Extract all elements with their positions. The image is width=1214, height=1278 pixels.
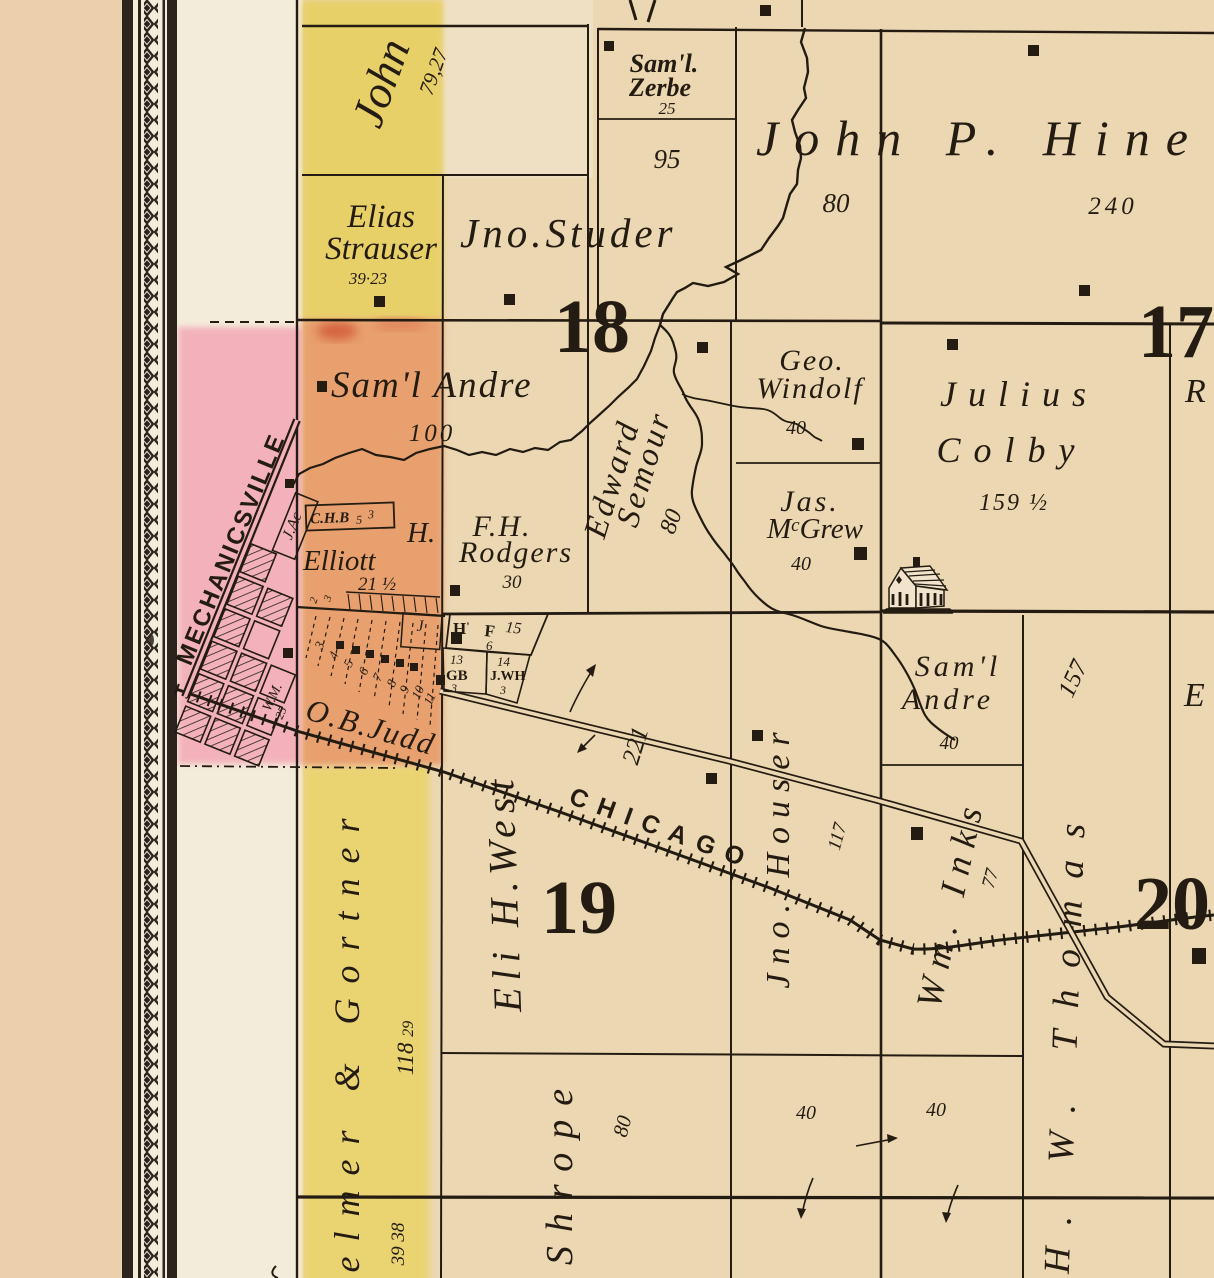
svg-text:elmer & Gortner: elmer & Gortner bbox=[327, 804, 367, 1273]
svg-text:E: E bbox=[1183, 677, 1205, 714]
svg-text:Colby: Colby bbox=[937, 430, 1088, 470]
svg-text:5: 5 bbox=[356, 513, 362, 527]
svg-text:40: 40 bbox=[791, 553, 811, 575]
svg-text:15: 15 bbox=[505, 619, 523, 638]
svg-text:40: 40 bbox=[796, 1102, 816, 1124]
svg-text:13: 13 bbox=[450, 652, 464, 667]
svg-text:Jno.Studer: Jno.Studer bbox=[460, 210, 677, 256]
svg-text:Shrope: Shrope bbox=[539, 1075, 581, 1265]
svg-text:159 ½: 159 ½ bbox=[979, 490, 1049, 516]
svg-text:John P. Hine: John P. Hine bbox=[756, 110, 1204, 166]
svg-text:McGrew: McGrew bbox=[766, 513, 864, 545]
svg-text:17: 17 bbox=[1138, 290, 1214, 374]
svg-text:Zerbe: Zerbe bbox=[628, 73, 691, 102]
svg-text:Windolf: Windolf bbox=[756, 372, 865, 405]
svg-text:39·23: 39·23 bbox=[348, 269, 387, 288]
svg-text:Andre: Andre bbox=[900, 683, 994, 716]
svg-text:C.H.B: C.H.B bbox=[310, 510, 350, 527]
svg-text:H.: H. bbox=[406, 517, 435, 549]
svg-text:40: 40 bbox=[940, 733, 960, 754]
svg-text:3: 3 bbox=[450, 681, 457, 695]
svg-text:Rodgers: Rodgers bbox=[458, 536, 573, 569]
svg-text:30: 30 bbox=[502, 572, 523, 593]
svg-text:J.WH: J.WH bbox=[490, 669, 526, 684]
svg-text:Eli H.West: Eli H.West bbox=[477, 772, 530, 1014]
svg-text:240: 240 bbox=[1088, 193, 1138, 220]
svg-text:Strauser: Strauser bbox=[325, 231, 437, 267]
svg-text:18: 18 bbox=[554, 285, 630, 369]
svg-text:3: 3 bbox=[499, 683, 506, 697]
svg-text:Sam'l: Sam'l bbox=[915, 650, 1001, 683]
svg-text:25: 25 bbox=[659, 99, 676, 118]
svg-text:6: 6 bbox=[486, 638, 493, 653]
svg-text:100: 100 bbox=[409, 420, 456, 447]
svg-text:95: 95 bbox=[654, 144, 681, 174]
svg-text:14: 14 bbox=[497, 654, 511, 669]
svg-text:3: 3 bbox=[367, 507, 374, 521]
svg-text:40: 40 bbox=[926, 1099, 946, 1121]
svg-text:Elliott: Elliott bbox=[302, 545, 376, 577]
svg-text:80: 80 bbox=[823, 188, 851, 218]
svg-text:Julius: Julius bbox=[940, 374, 1098, 414]
svg-text:Sam'l Andre: Sam'l Andre bbox=[331, 365, 533, 406]
svg-text:20: 20 bbox=[1134, 862, 1210, 946]
svg-text:Jno. Houser: Jno. Houser bbox=[760, 723, 797, 988]
svg-text:39 38: 39 38 bbox=[388, 1222, 409, 1266]
svg-text:19: 19 bbox=[541, 866, 617, 950]
svg-text:R: R bbox=[1184, 373, 1206, 410]
svg-text:Elias: Elias bbox=[346, 199, 415, 235]
svg-text:40: 40 bbox=[786, 417, 806, 439]
svg-text:21 ½: 21 ½ bbox=[358, 574, 396, 595]
svg-text:J: J bbox=[416, 618, 424, 635]
